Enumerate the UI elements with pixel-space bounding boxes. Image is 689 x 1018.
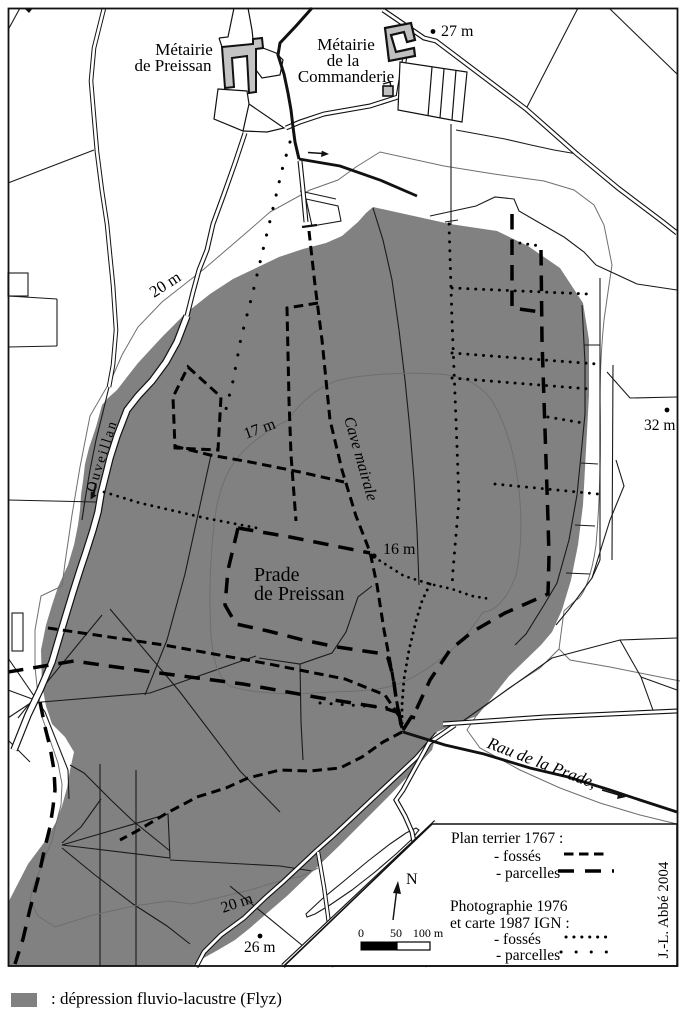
svg-text:50: 50 xyxy=(390,926,402,940)
svg-text:- parcelles: - parcelles xyxy=(496,865,560,882)
svg-text:Commanderie: Commanderie xyxy=(298,67,394,86)
svg-text:Rau de la Prade,: Rau de la Prade, xyxy=(484,733,599,792)
svg-text:- fossés: - fossés xyxy=(494,848,541,865)
svg-text:N: N xyxy=(406,871,418,888)
svg-text:0: 0 xyxy=(358,926,364,940)
svg-text:32 m: 32 m xyxy=(644,417,675,434)
svg-text:26 m: 26 m xyxy=(244,939,275,956)
svg-text:J.-L. Abbé 2004: J.-L. Abbé 2004 xyxy=(656,861,672,958)
svg-text:- parcelles: - parcelles xyxy=(496,947,560,964)
svg-text:: dépression fluvio-lacustre (: : dépression fluvio-lacustre (Flyz) xyxy=(51,989,282,1008)
svg-text:de Preissan: de Preissan xyxy=(254,583,345,605)
svg-text:et carte 1987 IGN :: et carte 1987 IGN : xyxy=(450,915,570,932)
svg-text:de Preissan: de Preissan xyxy=(135,56,212,75)
svg-text:16 m: 16 m xyxy=(383,541,416,558)
svg-text:- fossés: - fossés xyxy=(494,931,541,948)
svg-text:Plan terrier 1767 :: Plan terrier 1767 : xyxy=(451,830,563,847)
svg-text:27 m: 27 m xyxy=(441,23,474,40)
svg-text:100 m: 100 m xyxy=(413,926,444,940)
svg-text:20 m: 20 m xyxy=(146,267,185,301)
svg-text:Photographie 1976: Photographie 1976 xyxy=(450,898,568,915)
